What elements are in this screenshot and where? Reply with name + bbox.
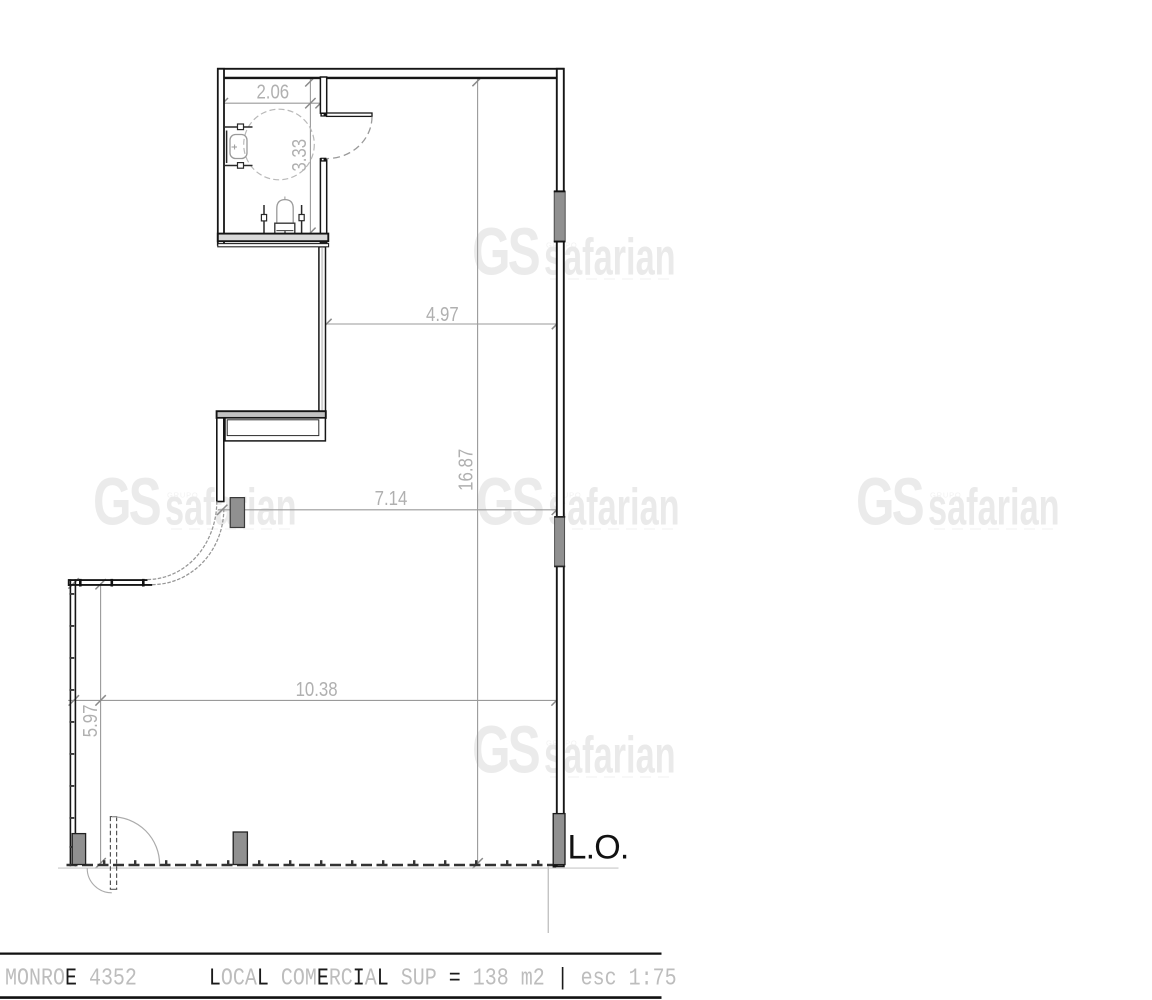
svg-text:GS: GS: [472, 713, 539, 787]
svg-text:2.06: 2.06: [256, 80, 289, 103]
svg-text:7.14: 7.14: [375, 487, 408, 510]
svg-text:GS: GS: [476, 465, 543, 539]
svg-text:GS: GS: [472, 215, 539, 289]
svg-text:safarian: safarian: [548, 478, 680, 536]
svg-text:L.O.: L.O.: [568, 829, 629, 867]
svg-text:MONROE 4352 LOCAL COMERCI: MONROE 4352 LOCAL COMERCIAL SUP = 138 m2…: [5, 965, 677, 992]
svg-text:16.87: 16.87: [454, 449, 477, 491]
svg-text:GS: GS: [856, 465, 923, 539]
svg-text:10.38: 10.38: [296, 677, 338, 700]
svg-text:4.97: 4.97: [426, 302, 459, 325]
svg-text:safarian: safarian: [928, 478, 1060, 536]
svg-text:5.97: 5.97: [78, 705, 101, 738]
svg-text:GS: GS: [93, 465, 160, 539]
